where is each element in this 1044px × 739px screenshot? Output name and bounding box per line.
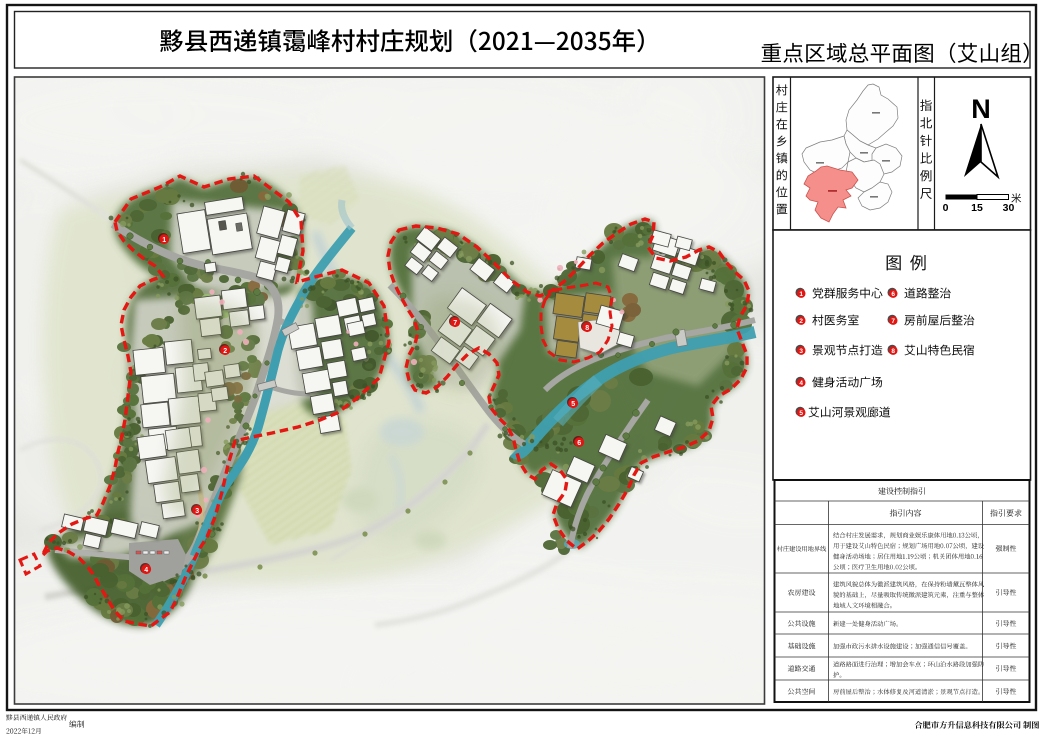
svg-text:1: 1 [162, 237, 166, 244]
svg-text:1: 1 [799, 291, 803, 298]
svg-text:5: 5 [799, 410, 803, 417]
svg-text:5: 5 [571, 401, 575, 408]
svg-text:7: 7 [891, 318, 895, 325]
svg-text:6: 6 [577, 440, 581, 447]
svg-text:3: 3 [195, 508, 199, 515]
svg-text:2: 2 [223, 348, 227, 355]
svg-text:4: 4 [144, 567, 148, 574]
svg-text:0: 0 [943, 202, 949, 214]
svg-text:15: 15 [971, 202, 983, 214]
svg-text:7: 7 [453, 320, 457, 327]
svg-text:8: 8 [585, 325, 589, 332]
svg-text:2: 2 [799, 318, 803, 325]
svg-text:6: 6 [891, 291, 895, 298]
svg-text:N: N [971, 94, 991, 124]
svg-text:4: 4 [799, 380, 803, 387]
svg-text:8: 8 [891, 348, 895, 355]
svg-text:3: 3 [799, 348, 803, 355]
svg-text:30: 30 [1003, 202, 1015, 214]
